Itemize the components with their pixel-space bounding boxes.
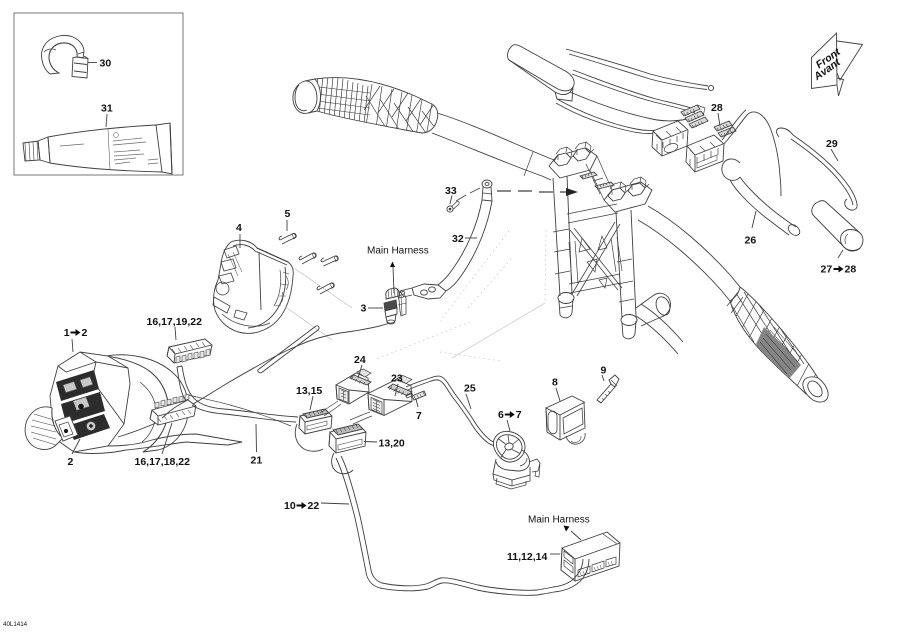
svg-text:5: 5 xyxy=(285,208,291,220)
svg-text:2: 2 xyxy=(82,327,88,339)
svg-text:13,15: 13,15 xyxy=(296,385,322,397)
svg-text:10: 10 xyxy=(284,500,296,512)
svg-text:Main Harness: Main Harness xyxy=(367,246,429,257)
svg-text:13,20: 13,20 xyxy=(379,438,405,450)
svg-text:9: 9 xyxy=(601,365,607,377)
svg-text:16,17,19,22: 16,17,19,22 xyxy=(147,316,203,328)
svg-text:30: 30 xyxy=(100,58,112,70)
svg-text:33: 33 xyxy=(445,185,457,197)
svg-text:21: 21 xyxy=(251,455,263,467)
svg-text:6: 6 xyxy=(498,409,504,421)
svg-text:Main Harness: Main Harness xyxy=(528,515,590,526)
svg-text:3: 3 xyxy=(361,303,367,315)
svg-text:7: 7 xyxy=(416,410,422,422)
svg-text:24: 24 xyxy=(354,354,366,366)
svg-text:1: 1 xyxy=(64,327,70,339)
svg-text:11,12,14: 11,12,14 xyxy=(507,551,547,563)
svg-text:32: 32 xyxy=(452,233,464,245)
svg-text:28: 28 xyxy=(845,264,857,276)
svg-text:31: 31 xyxy=(101,103,113,115)
svg-text:28: 28 xyxy=(711,102,723,114)
svg-text:25: 25 xyxy=(464,383,476,395)
svg-text:4: 4 xyxy=(236,222,242,234)
svg-text:16,17,18,22: 16,17,18,22 xyxy=(135,456,191,468)
svg-text:40L1414: 40L1414 xyxy=(3,621,28,628)
svg-text:23: 23 xyxy=(391,373,403,385)
svg-text:27: 27 xyxy=(821,264,833,276)
svg-text:22: 22 xyxy=(308,500,320,512)
svg-text:8: 8 xyxy=(552,377,558,389)
svg-text:29: 29 xyxy=(826,138,838,150)
svg-text:7: 7 xyxy=(516,409,522,421)
svg-text:26: 26 xyxy=(745,235,757,247)
svg-text:2: 2 xyxy=(68,456,74,468)
